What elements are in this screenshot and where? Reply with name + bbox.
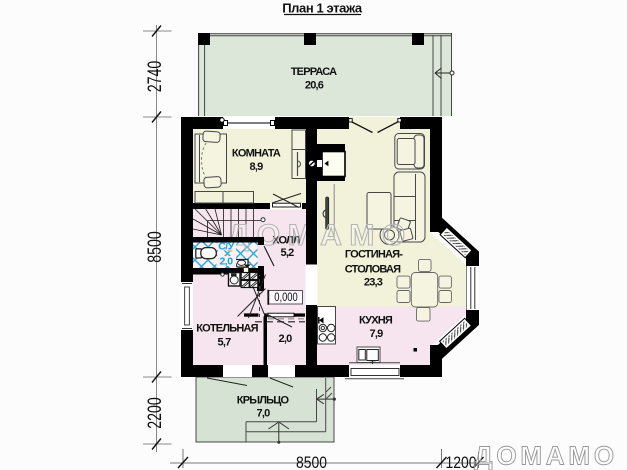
svg-text:2200: 2200 — [144, 397, 166, 429]
svg-text:ТЕРРАСА: ТЕРРАСА — [291, 66, 337, 78]
svg-text:8500: 8500 — [144, 231, 166, 263]
svg-text:0,000: 0,000 — [274, 292, 298, 304]
svg-text:КОМНАТА: КОМНАТА — [232, 148, 281, 160]
svg-text:5,7: 5,7 — [218, 337, 232, 349]
svg-text:КРЫЛЬЦО: КРЫЛЬЦО — [237, 395, 290, 407]
svg-text:8,9: 8,9 — [250, 161, 264, 173]
svg-text:КОТЕЛЬНАЯ: КОТЕЛЬНАЯ — [196, 323, 258, 335]
svg-text:2740: 2740 — [144, 61, 166, 93]
svg-text:СТОЛОВАЯ: СТОЛОВАЯ — [345, 264, 401, 276]
svg-text:План 1 этажа: План 1 этажа — [282, 1, 363, 16]
svg-text:7,0: 7,0 — [257, 408, 271, 420]
svg-text:20,6: 20,6 — [305, 80, 324, 92]
svg-text:КУХНЯ: КУХНЯ — [359, 315, 393, 327]
svg-text:23,3: 23,3 — [364, 277, 383, 289]
svg-text:ДОМАМО: ДОМАМО — [474, 441, 618, 470]
svg-text:7,9: 7,9 — [370, 328, 384, 340]
svg-text:2,0: 2,0 — [219, 256, 233, 268]
svg-text:8500: 8500 — [296, 453, 327, 470]
svg-text:С/У: С/У — [218, 241, 235, 253]
svg-text:ДОМАМО: ДОМАМО — [228, 219, 413, 252]
svg-text:1200: 1200 — [446, 453, 477, 470]
svg-text:2,0: 2,0 — [279, 333, 293, 345]
